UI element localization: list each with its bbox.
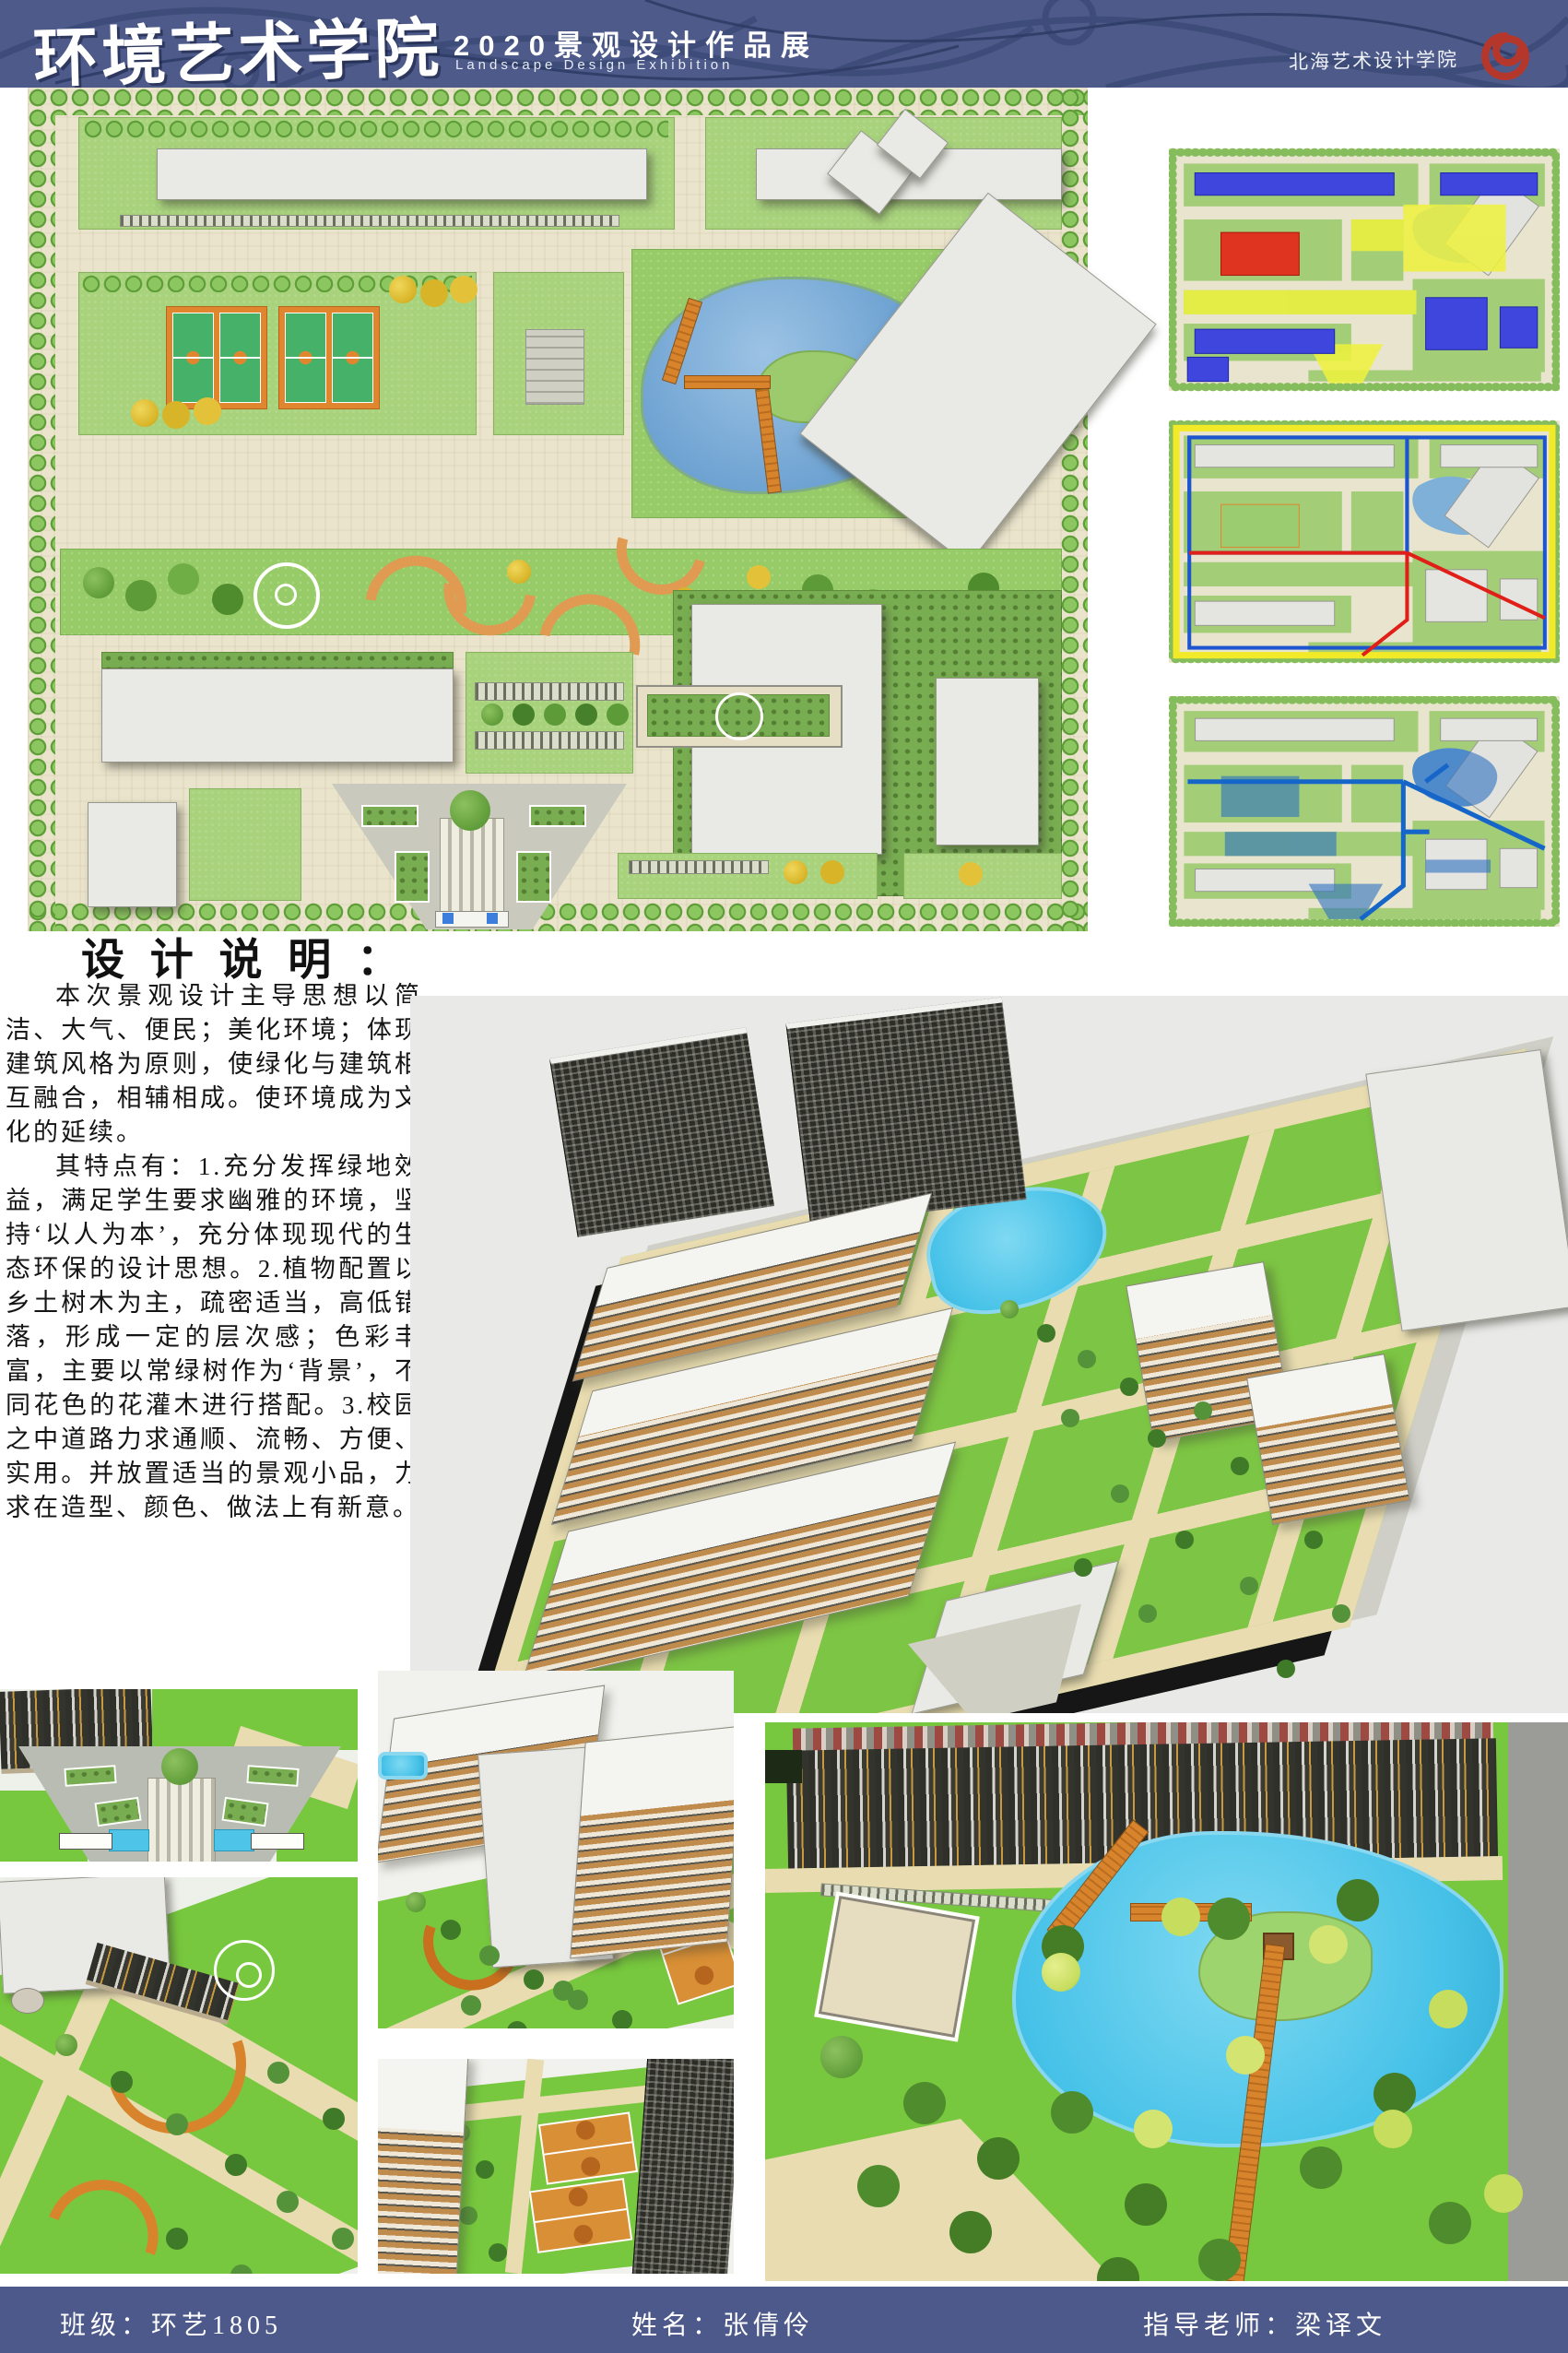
institute-logo-icon (1480, 31, 1530, 81)
tree-cluster (55, 2034, 77, 2056)
gate-booth (442, 913, 454, 924)
render-lawn-bands (0, 1877, 358, 2274)
tree-row-dark (481, 704, 503, 726)
lawn-block (189, 788, 301, 901)
landscape-rock (11, 1988, 44, 2014)
pond-island (1198, 1911, 1373, 2021)
plaza-wedge (765, 2119, 1115, 2281)
seating-terrace (814, 1891, 980, 2041)
gate-canopy (251, 1833, 304, 1850)
main-aerial-render (410, 996, 1568, 1713)
lawn-block (903, 853, 1062, 899)
school-title: 环境艺术学院 (32, 0, 443, 101)
exhibition-subtitle: Landscape Design Exhibition (455, 57, 733, 73)
student-name-label: 姓名：张倩伶 (631, 2305, 814, 2342)
mid-rise-building (1246, 1354, 1410, 1525)
slab-building-front (570, 1726, 734, 1959)
statement-paragraph-2: 其特点有：1.充分发挥绿地效益，满足学生要求幽雅的环境，坚持‘以人为本’，充分体… (6, 1150, 422, 1525)
zigzag-bridge (684, 375, 771, 389)
dark-highrise (785, 997, 1026, 1225)
lab-building (936, 678, 1039, 845)
gray-ground-band (1508, 1722, 1568, 2281)
tree-cluster (1000, 1300, 1019, 1318)
gate-canopy (59, 1833, 112, 1850)
tree-cluster-yellow (1042, 1953, 1080, 1992)
boardwalk (1130, 1903, 1252, 1921)
plaza-steps (147, 1778, 216, 1862)
diagram-functional-zoning (1169, 148, 1560, 392)
yellow-tree (131, 399, 159, 427)
basketball-courts (166, 306, 267, 409)
basketball-court (332, 313, 373, 403)
tree-border-right (1060, 88, 1088, 931)
hedge-tick-strip (629, 860, 769, 874)
exhibition-poster: 环境艺术学院 2020景观设计作品展 Landscape Design Exhi… (0, 0, 1568, 2353)
tree-row (83, 119, 668, 139)
header-band: 环境艺术学院 2020景观设计作品展 Landscape Design Exhi… (0, 0, 1568, 88)
render-courts-view (378, 2059, 734, 2274)
render-waterfront-park (765, 1722, 1568, 2281)
teaching-building (101, 668, 454, 763)
dark-highrise (631, 2059, 734, 2274)
tree-cluster (83, 567, 114, 598)
plaza-planter (516, 851, 551, 903)
diagram-circulation-analysis (1169, 420, 1560, 664)
basketball-court (529, 2178, 632, 2253)
basketball-courts (278, 306, 380, 409)
water-channel (214, 1829, 254, 1851)
institute-name: 北海艺术设计学院 (1289, 44, 1458, 75)
plaza-planter (246, 1765, 299, 1787)
stair-strip (120, 215, 619, 227)
plaza-planter (64, 1765, 116, 1787)
service-building (88, 802, 177, 907)
planter-circle (715, 692, 763, 740)
white-tower (1365, 1049, 1568, 1331)
lawn-circle-motif (236, 1962, 262, 1988)
gate-booth (487, 913, 498, 924)
tree-cluster-green (820, 2036, 863, 2078)
basketball-court (538, 2111, 638, 2184)
plaza-planter (529, 805, 586, 827)
hedge-strip (101, 652, 454, 668)
basketball-court (285, 313, 326, 403)
master-plan (28, 88, 1088, 931)
yellow-tree (507, 560, 531, 584)
parking-strip (475, 731, 624, 750)
yellow-tree (389, 276, 417, 303)
statement-paragraph-1: 本次景观设计主导思想以简洁、大气、便民；美化环境；体现建筑风格为原则，使绿化与建… (6, 979, 422, 1150)
pavilion-plaza (525, 329, 584, 405)
plaza-planter (361, 805, 419, 827)
spiral-feature-core (275, 584, 297, 606)
tree-cluster (406, 1892, 426, 1912)
statement-title: 设 计 说 明 ： (81, 924, 407, 987)
dormitory-building (157, 148, 647, 200)
class-label: 班级：环艺1805 (60, 2305, 282, 2342)
diagram-landscape-axis (1169, 696, 1560, 927)
advisor-label: 指导老师：梁译文 (1143, 2305, 1386, 2342)
yellow-tree (784, 860, 808, 884)
hedge-dark (765, 1750, 802, 1783)
plaza-tree (161, 1748, 198, 1785)
statement-text: 本次景观设计主导思想以简洁、大气、便民；美化环境；体现建筑风格为原则，使绿化与建… (6, 979, 422, 1525)
plaza-tree (450, 790, 490, 831)
tree-border-left (28, 88, 55, 931)
white-building-edge (378, 2059, 469, 2274)
basketball-court (172, 313, 214, 403)
parking-strip (475, 682, 624, 701)
basketball-court (219, 313, 261, 403)
water-channel (109, 1829, 149, 1851)
pool-sliver (378, 1752, 428, 1780)
render-entrance-plaza (0, 1689, 358, 1862)
dark-highrise (549, 1027, 774, 1236)
render-slab-buildings (378, 1671, 734, 2028)
footer-band: 班级：环艺1805 姓名：张倩伶 指导老师：梁译文 (0, 2287, 1568, 2353)
tree-border-top (28, 88, 1088, 115)
plaza-planter (395, 851, 430, 903)
